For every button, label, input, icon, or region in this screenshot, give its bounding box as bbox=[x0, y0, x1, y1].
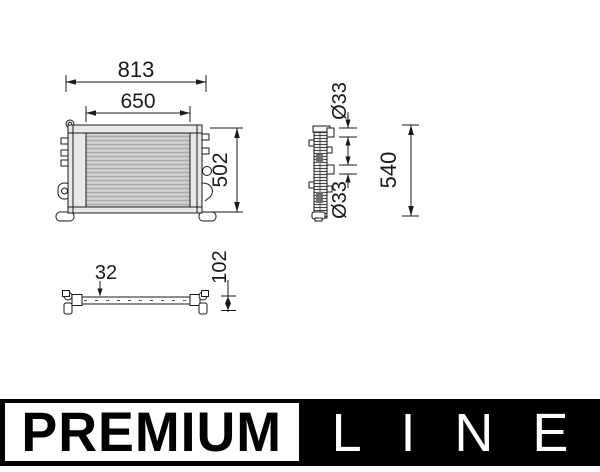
side-body bbox=[314, 127, 327, 218]
radiator-front-view bbox=[56, 120, 216, 221]
dim-depth: 32 bbox=[95, 262, 117, 297]
premium-line-logo: PREMIUM LINE bbox=[0, 399, 600, 466]
dim-side-height: 540 bbox=[376, 125, 419, 216]
side-pipe-top bbox=[327, 128, 334, 137]
dim-label-650: 650 bbox=[120, 90, 155, 113]
dim-label-813: 813 bbox=[118, 57, 155, 82]
line-logo-text: LINE bbox=[332, 406, 600, 460]
premium-logo-text: PREMIUM bbox=[22, 404, 283, 460]
dim-label-32: 32 bbox=[95, 262, 117, 284]
side-left-tab-2 bbox=[309, 182, 314, 188]
premium-logo-box: PREMIUM bbox=[5, 403, 299, 461]
dim-label-502: 502 bbox=[209, 152, 232, 187]
dim-label-540: 540 bbox=[376, 152, 401, 189]
front-right-tab-1 bbox=[202, 134, 209, 140]
dim-front-height: 502 bbox=[209, 128, 243, 212]
dim-core-width: 650 bbox=[86, 90, 190, 122]
technical-drawing: 813 650 502 Ø33 bbox=[0, 0, 600, 400]
dim-label-o33-bottom: Ø33 bbox=[329, 181, 351, 219]
front-core bbox=[86, 133, 190, 207]
dim-pipe-bottom: Ø33 bbox=[329, 152, 357, 219]
side-right-tab-1 bbox=[327, 147, 332, 153]
dim-overall-width: 813 bbox=[66, 57, 206, 92]
front-right-tab-2 bbox=[202, 148, 209, 154]
front-left-tab-1 bbox=[61, 138, 68, 144]
dim-mount-height: 102 bbox=[209, 250, 236, 312]
front-left-tab-2 bbox=[61, 150, 68, 156]
side-left-tab-1 bbox=[309, 140, 314, 146]
side-pipe-bottom bbox=[327, 165, 334, 174]
front-left-tab-3 bbox=[61, 160, 68, 166]
dim-label-102: 102 bbox=[209, 250, 231, 283]
line-logo-box: LINE bbox=[300, 399, 600, 466]
dim-pipe-top: Ø33 bbox=[329, 82, 357, 152]
bottom-left-fitting bbox=[72, 295, 82, 306]
bottom-right-fitting bbox=[190, 295, 200, 306]
radiator-bottom-view bbox=[63, 291, 209, 315]
